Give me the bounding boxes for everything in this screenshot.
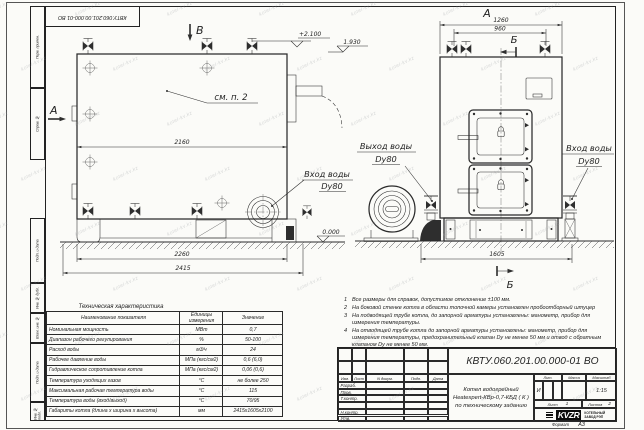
flue-arc [322,96,342,128]
mass-value-cell [562,381,586,400]
sheets-label: Листов [588,402,602,407]
lit-header: Лит. [534,374,562,381]
spec-cell: Номинальная мощность [47,325,180,335]
mass-header: Масса [562,374,586,381]
inlet-label-text: Вход воды [566,143,612,153]
titleblock-empty-cell [404,409,428,416]
valve-icon [540,42,550,58]
spec-header-units: Единицы измерения [180,312,223,325]
spec-cell: не более 250 [223,376,283,386]
titleblock-empty-cell [404,382,428,389]
kvzr-logo: KVZR [556,410,582,420]
spec-cell: °С [180,386,223,396]
table-row: Расход водым3/ч24 [47,345,283,355]
table-row: Диапазон рабочего регулирования%50-100 [47,335,283,345]
inlet-pipe-valve [562,196,578,241]
dim-text-2415: 2415 [175,265,190,272]
spec-cell: м3/ч [180,345,223,355]
view-letter-a: А [482,7,491,20]
note-text: На отводящей трубе котла до запорной арм… [352,328,615,350]
note-number: 4 [344,328,352,350]
titleblock-empty-cell [366,416,404,423]
product-line1: Котел водогрейный [463,386,518,394]
center-mark-icon [215,196,230,211]
spec-header-value: Значение [223,312,283,325]
col-header-podp: Подп. [404,374,428,382]
section-mark-b-bottom: Б [497,266,514,291]
titleblock-empty-cell [338,361,352,374]
note-text: Все размеры для справок, допустимое откл… [352,297,511,304]
spec-cell: МПа (кгс/см2) [180,365,223,375]
titleblock-empty-cell [404,361,428,374]
spec-table-section: Техническая характеристика Наименование … [46,304,282,417]
boiler-door-upper [458,110,532,163]
dimension-960: 960 [454,26,546,47]
inlet-label-dn: Dy80 [578,156,600,166]
titleblock-empty-cell [366,402,404,409]
table-row: Габариты котла (длина х ширина х высота)… [47,406,283,416]
valve-icon [461,42,471,58]
center-mark-icon [200,61,215,76]
spec-cell: мм [180,406,223,416]
titleblock-empty-cell [428,382,448,389]
titleblock-empty-cell [428,416,448,423]
product-name-cell: Котел водогрейный Heatexpert-КВр-0,7-КБД… [448,374,534,422]
spec-cell: 24 [223,345,283,355]
row-label-nkontr: Н.контр. [338,409,366,416]
boiler-body-side [77,54,287,219]
titleblock-empty-cell [428,395,448,402]
titleblock-empty-cell [366,389,404,396]
company-line2: ЗАВОД РЭП [584,415,603,419]
callout-text: см. п. 2 [214,93,247,103]
sheet-label: Лист [548,402,558,407]
title-block: Изм. Лист N докум. Подп. Дата Разраб. Пр… [337,347,616,421]
titleblock-empty-cell [366,382,404,389]
sheets-cell: Листов 2 [582,400,617,408]
spec-cell: Габариты котла (длина х ширина х высота) [47,406,180,416]
spec-cell: °С [180,396,223,406]
doc-number: КВТУ.060.201.00.000-01 ВО [466,356,598,367]
ground-hatch [355,241,614,248]
callout-sm-p2: см. п. 2 [166,90,258,103]
row-label-razrab: Разраб. [338,382,366,389]
spec-cell: Рабочее давление воды [47,355,180,365]
section-letter: А [49,104,58,117]
spec-cell: Температура уходящих газов [47,376,180,386]
product-line3: по техническому заданию [455,402,527,410]
titleblock-empty-cell [428,402,448,409]
spec-cell: % [180,335,223,345]
table-row: Температура воды (вход/выход)°С70/95 [47,396,283,406]
note-number: 2 [344,305,352,312]
inlet-flange [245,194,281,230]
inlet-label-text: Вход воды [304,169,350,179]
dimension-2160: 2160 [77,139,287,147]
valve-icon [303,206,312,219]
boiler-door-lower [458,165,532,215]
table-row: Гидравлическое сопротивление котлаМПа (к… [47,365,283,375]
elevation-mark-ground: 0.000 [317,229,345,242]
note-item: 3На подводящей трубе котла, до запорной … [344,313,615,328]
titleblock-empty-cell [428,348,448,361]
section-letter: Б [511,35,518,46]
flue-channel [287,75,296,122]
spec-cell: °С [180,376,223,386]
section-mark-b-top: Б [500,35,518,57]
flue-duct [296,86,322,96]
titleblock-empty-cell [404,395,428,402]
titleblock-empty-cell [338,402,366,409]
fan-blower [364,186,418,242]
outlet-elbow [420,220,441,241]
note-text: На подводящей трубе котла, до запорной а… [352,313,615,328]
spec-cell: 0,7 [223,325,283,335]
table-row: Номинальная мощностьМВт0,7 [47,325,283,335]
ground-hatch [60,242,345,249]
scale-header: Масштаб [586,374,617,381]
spec-cell: Расход воды [47,345,180,355]
titleblock-empty-cell [404,389,428,396]
inlet-label-dn: Dy80 [321,181,343,191]
col-header-list: Лист [352,374,366,382]
side-view-drawing: 2160 2260 2415 +2.100 [48,24,368,276]
elevation-mark-fan: 1.930 [328,39,368,52]
dim-text-1605: 1605 [489,251,504,258]
titleblock-empty-cell [366,348,404,361]
logo-bars-icon [546,411,553,420]
row-label-utv: Утв. [338,416,366,423]
spec-cell: Максимальная рабочая температура воды [47,386,180,396]
titleblock-empty-cell [366,395,404,402]
titleblock-empty-cell [428,389,448,396]
titleblock-empty-cell [428,361,448,374]
note-number: 1 [344,297,352,304]
titleblock-empty-cell [352,348,366,361]
valve-icon [130,204,140,220]
spec-cell: 0,06 (0,6) [223,365,283,375]
sheets-value: 2 [608,402,611,407]
sheet-cell: Лист 1 [534,400,582,408]
hinge-icon [525,123,529,127]
table-row: Температура уходящих газов°Сне более 250 [47,376,283,386]
hinge-icon [525,147,529,151]
inlet-label-front: Вход воды Dy80 [562,143,614,200]
valve-icon [202,39,212,55]
valve-icon [83,204,93,220]
titleblock-empty-cell [366,361,404,374]
inlet-label-side: Вход воды Dy80 [271,169,353,207]
wall-boss [72,106,77,121]
table-row: Максимальная рабочая температура воды°С1… [47,386,283,396]
product-line2: Heatexpert-КВр-0,7-КБД ( К ) [453,394,529,402]
titleblock-empty-cell [404,416,428,423]
notes-list: 1Все размеры для справок, допустимое отк… [344,297,615,350]
section-mark-v: В [188,24,204,41]
panel-box [526,78,552,99]
spec-cell: 115 [223,386,283,396]
outlet-label: Выход воды Dy80 [357,141,433,202]
center-mark-icon [83,107,98,122]
doc-number-cell: КВТУ.060.201.00.000-01 ВО [448,348,617,374]
dim-text-2160: 2160 [174,139,189,146]
elevation-mark-top: +2.100 [252,31,330,47]
note-number: 3 [344,313,352,328]
titleblock-empty-cell [338,348,352,361]
table-row: Наименование показателя Единицы измерени… [47,312,283,325]
titleblock-empty-cell [404,402,428,409]
hinge-icon [525,202,529,206]
titleblock-empty-cell [366,409,404,416]
sheet-value: 1 [566,402,569,407]
company-name: КОТЕЛЬНЫЙ ЗАВОД РЭП [584,411,605,419]
wall-boss [72,184,77,199]
dim-text-2260: 2260 [174,251,189,258]
valve-icon [192,204,202,220]
spec-cell: 70/95 [223,396,283,406]
note-item: 1Все размеры для справок, допустимое отк… [344,297,615,304]
spec-cell: Гидравлическое сопротивление котла [47,365,180,375]
hinge-icon [525,178,529,182]
titleblock-empty-cell [352,361,366,374]
elevation-text: +2.100 [299,31,321,38]
panel-slot [533,94,542,97]
row-label-prov: Пров. [338,389,366,396]
col-header-data: Дата [428,374,448,382]
table-row: Рабочее давление водыМПа (кгс/см2)0,6 (6… [47,355,283,365]
spec-cell: Диапазон рабочего регулирования [47,335,180,345]
section-letter: Б [507,280,514,291]
spec-cell: Температура воды (вход/выход) [47,396,180,406]
spec-table-title: Техническая характеристика [46,304,196,310]
spec-cell: 50-100 [223,335,283,345]
row-label-tkontr: Т.контр. [338,395,366,402]
col-header-izm: Изм. [338,374,352,382]
spec-cell: МПа (кгс/см2) [180,355,223,365]
note-item: 4На отводящей трубе котла до запорной ар… [344,328,615,350]
elevation-text: 0.000 [322,229,339,236]
spec-header-name: Наименование показателя [47,312,180,325]
outlet-label-dn: Dy80 [375,154,397,164]
spec-cell: 0,6 (6,0) [223,355,283,365]
dim-text-960: 960 [494,26,506,33]
spec-cell: 2415х1605х2100 [223,406,283,416]
lit-cell-2 [543,381,552,400]
company-cell: KVZR КОТЕЛЬНЫЙ ЗАВОД РЭП [534,408,617,422]
scale-value: 1:15 [586,381,617,400]
elevation-text: 1.930 [343,39,360,46]
spec-cell: МВт [180,325,223,335]
note-item: 2На боковой стенке котла в области топоч… [344,305,615,312]
drawing-sheet: Перв. примен. Справ. № Подп. и дата Инв.… [0,0,644,430]
section-letter: В [196,24,204,37]
col-header-docnum: N докум. [366,374,404,382]
dim-text-1260: 1260 [493,17,508,24]
lit-cell-3 [553,381,562,400]
front-view-drawing: А 1260 960 Б [355,7,614,291]
center-mark-icon [83,61,98,76]
outlet-label-text: Выход воды [360,141,413,151]
section-mark-a: А [48,104,66,121]
lit-value: И [534,381,543,400]
valve-icon [83,39,93,55]
center-mark-icon [83,155,98,170]
titleblock-empty-cell [404,348,428,361]
valve-icon [447,42,457,58]
spec-table: Наименование показателя Единицы измерени… [46,311,283,417]
titleblock-empty-cell [428,409,448,416]
note-text: На боковой стенке котла в области топочн… [352,305,595,312]
